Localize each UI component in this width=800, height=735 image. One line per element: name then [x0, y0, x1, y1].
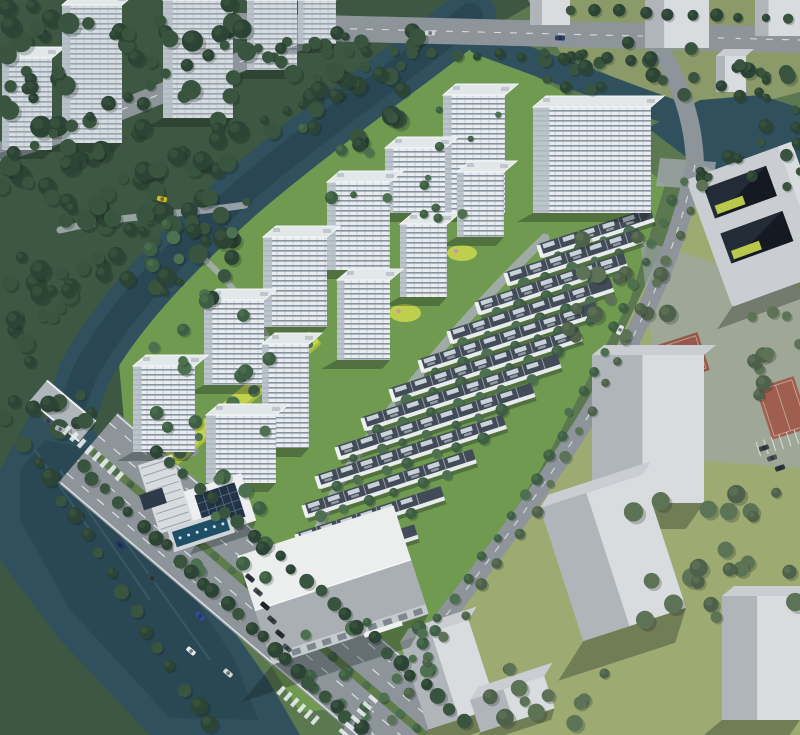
- context-slab: [645, 0, 717, 48]
- car: [425, 30, 435, 35]
- yellow-garden: [389, 304, 421, 322]
- aerial-render-view: [0, 0, 800, 735]
- car: [555, 35, 565, 40]
- residential-tower: [517, 96, 664, 222]
- yellow-garden: [447, 245, 477, 261]
- scene-svg: [0, 0, 800, 735]
